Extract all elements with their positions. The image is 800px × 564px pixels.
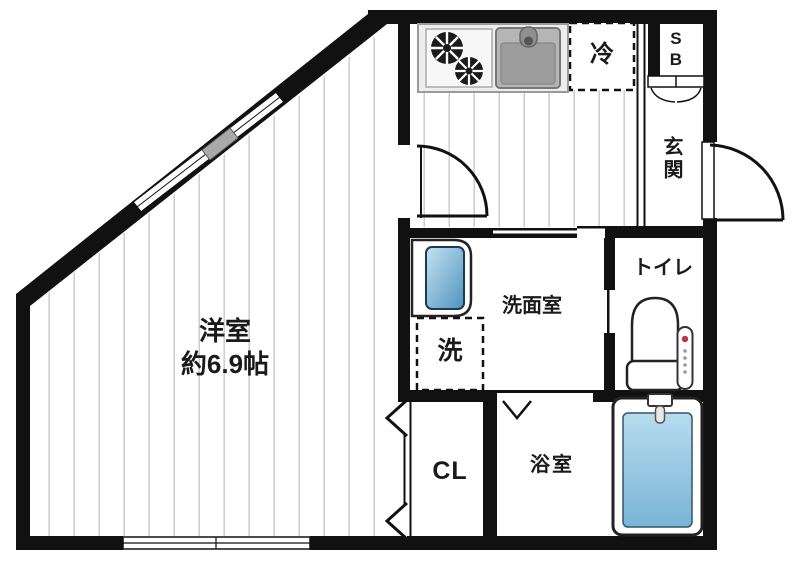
flooring-lines xyxy=(34,24,637,536)
entrance-step-line xyxy=(637,24,639,228)
window-bottom xyxy=(123,537,310,549)
kitchen-sink-icon xyxy=(496,27,560,88)
floorplan-drawing xyxy=(0,0,800,564)
vanity-sink-icon xyxy=(412,240,471,316)
bathroom-door-symbol xyxy=(503,401,531,418)
kitchen-counter xyxy=(418,24,568,92)
entrance-door-arc xyxy=(702,142,783,220)
bathroom-door-line xyxy=(497,390,593,393)
floorplan-page: 洋室 約6.9帖 洗面室 トイレ 玄関 浴室 CL SB 冷 洗 xyxy=(0,0,800,564)
bathtub-icon xyxy=(613,394,702,535)
shoebox-folding-door xyxy=(648,76,704,102)
toilet-icon xyxy=(627,298,693,390)
toilet-control-panel-icon xyxy=(678,327,693,389)
tub-faucet-icon xyxy=(648,394,672,406)
entrance-step-line xyxy=(644,24,646,228)
washer-space xyxy=(417,318,483,390)
shoebox-wall xyxy=(648,24,660,80)
toilet-door-line xyxy=(607,290,610,333)
refrigerator-space xyxy=(570,23,634,90)
